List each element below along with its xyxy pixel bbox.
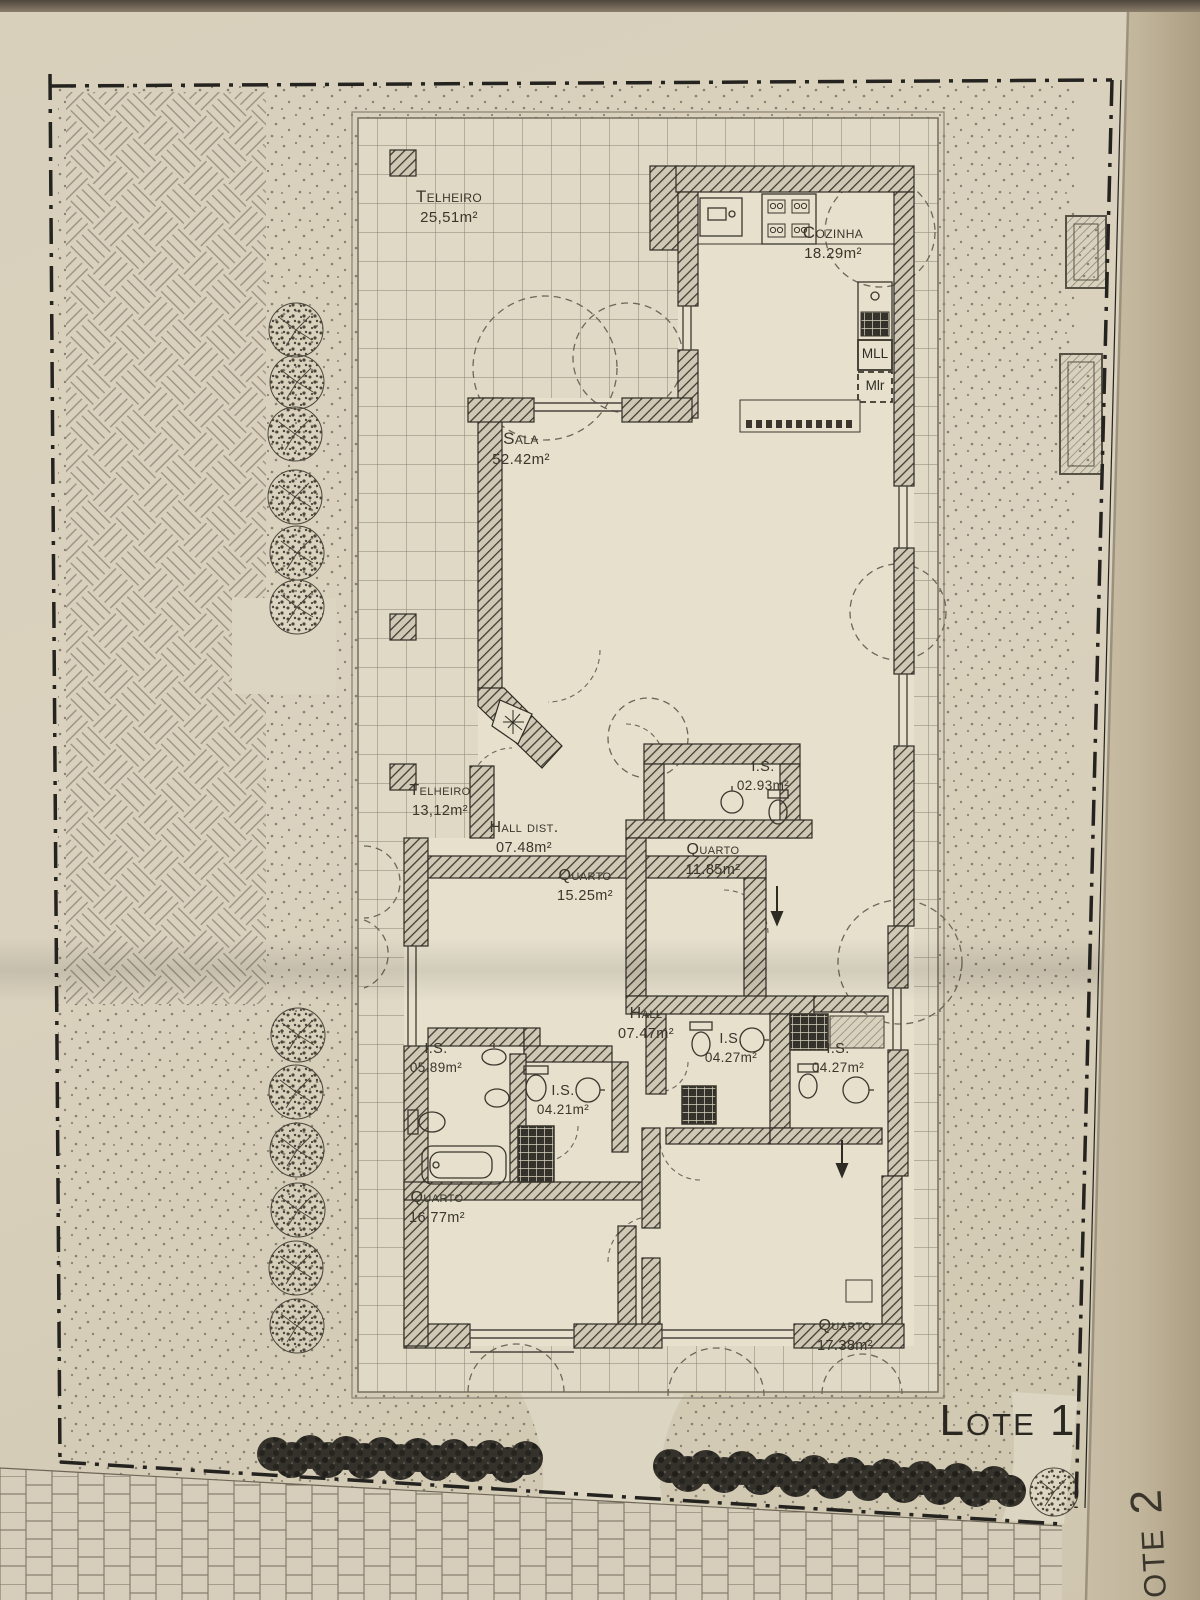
floor-plan-photo: Telheiro 25,51m² Cozinha 18.29m² Sala 52… <box>0 0 1200 1600</box>
site-plan-drawing <box>0 0 1200 1600</box>
paper-crease <box>0 938 1200 1002</box>
